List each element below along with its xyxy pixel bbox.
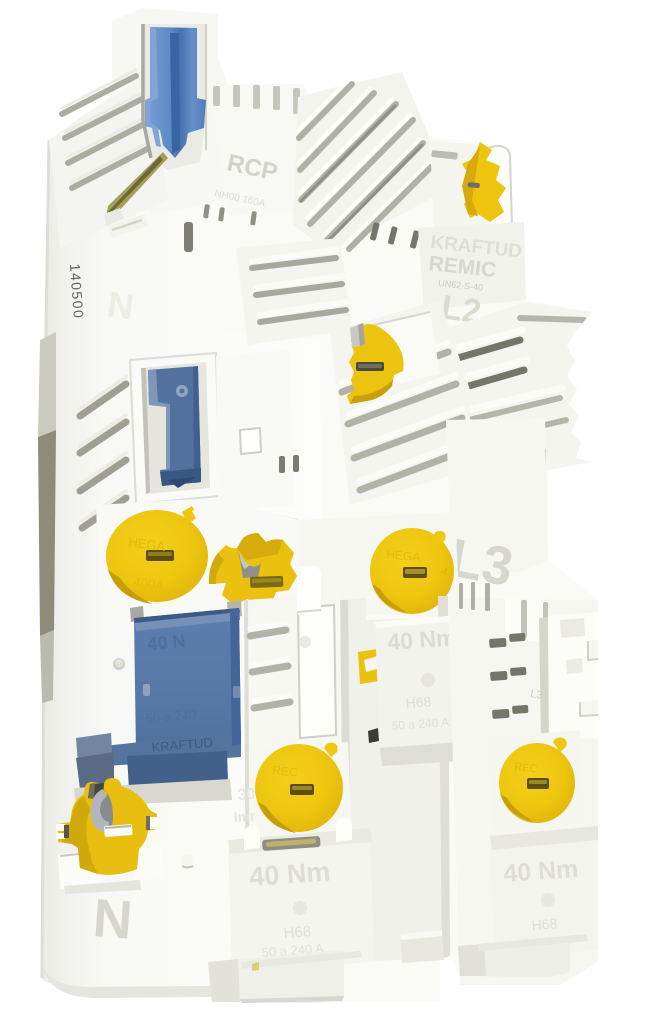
svg-text:40 Nm: 40 Nm <box>387 624 458 655</box>
svg-text:40 Nm: 40 Nm <box>248 856 331 892</box>
svg-text:N: N <box>91 888 134 951</box>
svg-text:40 N: 40 N <box>147 631 187 654</box>
svg-text:40 Nm: 40 Nm <box>502 855 579 888</box>
svg-text:H68: H68 <box>283 923 312 942</box>
svg-text:L3: L3 <box>530 688 544 702</box>
svg-text:REC: REC <box>514 761 538 775</box>
svg-text:REC: REC <box>272 763 299 780</box>
svg-text:H68: H68 <box>531 915 558 933</box>
svg-text:H68: H68 <box>405 693 432 711</box>
